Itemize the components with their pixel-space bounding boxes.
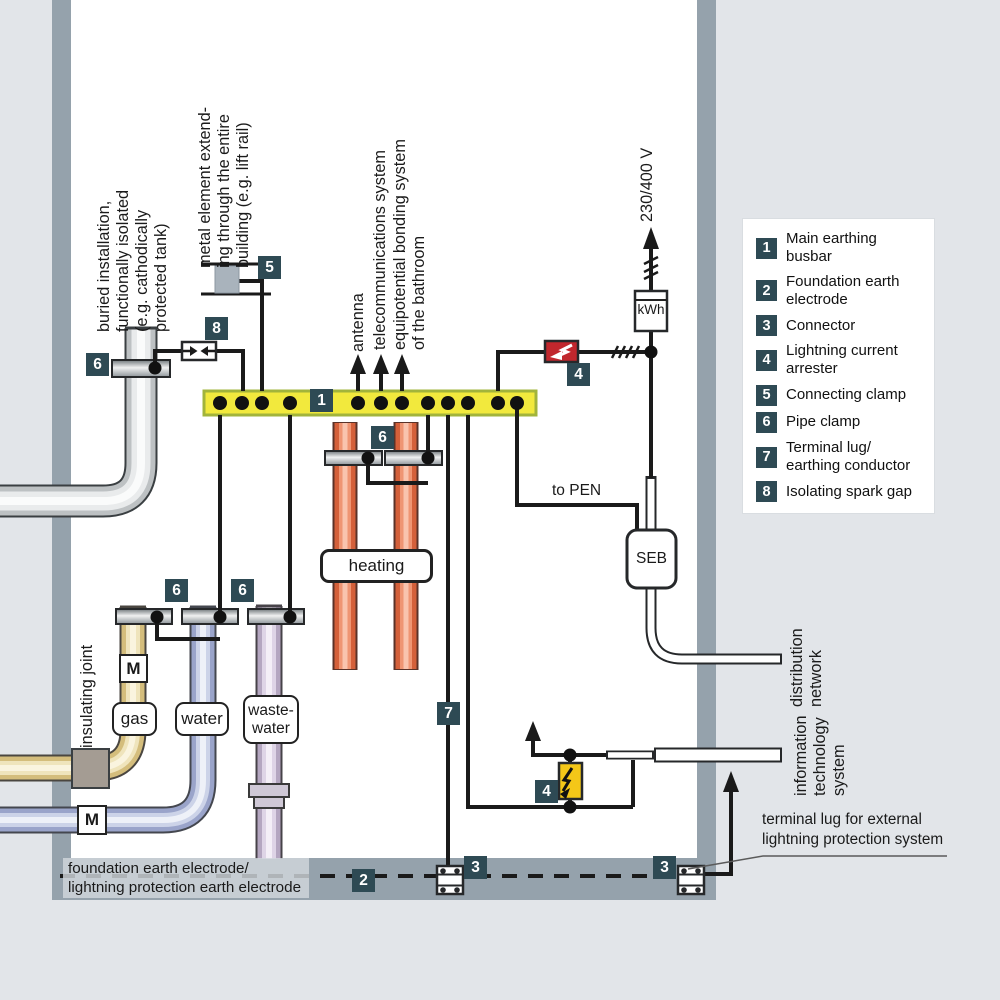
isolating-spark-gap [182,342,216,360]
label-metal-element: metal element extend- ing through the en… [196,107,253,268]
marker-6-clamp-gas-water: 6 [165,579,188,602]
label-buried-installation: buried installation, functionally isolat… [95,190,171,332]
legend-item-2: 2 Foundation earth electrode [756,273,926,310]
legend-label-8: Isolating spark gap [786,483,912,501]
legend-item-4: 4 Lightning current arrester [756,342,926,379]
legend: 1 Main earthing busbar 2 Foundation eart… [742,218,935,514]
label-telecommunications: telecommunications system [371,150,390,350]
marker-6-clamp-waste: 6 [231,579,254,602]
label-equipotential-bathroom: equipotential bonding system of the bath… [391,139,429,350]
water-box: water [175,702,229,736]
connector-right [678,866,704,894]
marker-1-main-busbar: 1 [310,389,333,412]
earthing-system-diagram: buried installation, functionally isolat… [0,0,1000,1000]
marker-6-clamp-buried: 6 [86,353,109,376]
legend-item-8: 8 Isolating spark gap [756,481,926,502]
water-meter-box: M [77,805,107,835]
label-antenna: antenna [349,293,368,352]
label-voltage: 230/400 V [638,148,657,222]
legend-badge-7: 7 [756,447,777,468]
legend-label-5: Connecting clamp [786,386,906,404]
legend-label-7: Terminal lug/ earthing conductor [786,439,910,476]
label-infotech-system: information technology system [792,715,849,796]
legend-badge-6: 6 [756,412,777,433]
legend-badge-8: 8 [756,481,777,502]
heating-box: heating [320,549,433,583]
marker-5-connecting-clamp: 5 [258,256,281,279]
main-earthing-busbar [204,391,536,415]
gas-meter-box: M [119,654,148,683]
legend-item-5: 5 Connecting clamp [756,385,926,406]
legend-badge-1: 1 [756,238,777,259]
label-terminal-lug-external: terminal lug for external lightning prot… [762,810,957,850]
label-distribution-network: distribution network [788,628,826,707]
legend-label-1: Main earthing busbar [786,230,926,267]
legend-badge-4: 4 [756,350,777,371]
legend-badge-3: 3 [756,315,777,336]
legend-label-6: Pipe clamp [786,413,860,431]
arrester-yellow [559,763,582,799]
legend-item-3: 3 Connector [756,315,926,336]
marker-2-foundation-electrode: 2 [352,869,375,892]
legend-label-3: Connector [786,317,855,335]
kwh-divider [635,299,667,301]
connector-left [437,866,463,894]
legend-label-4: Lightning current arrester [786,342,898,379]
marker-4-arrester-top: 4 [567,363,590,386]
legend-badge-5: 5 [756,385,777,406]
legend-badge-2: 2 [756,280,777,301]
waste-water-box: waste- water [243,695,299,744]
marker-3-connector-left: 3 [464,856,487,879]
legend-label-2: Foundation earth electrode [786,273,899,310]
marker-4-arrester-bottom: 4 [535,780,558,803]
label-insulating-joint: insulating joint [78,645,97,748]
marker-6-clamp-heating: 6 [371,426,394,449]
kwh-label: kWh [635,302,667,317]
kwh-meter: kWh [635,291,667,331]
marker-8-spark-gap: 8 [205,317,228,340]
label-to-pen: to PEN [552,482,601,500]
label-foundation-electrode: foundation earth electrode/ lightning pr… [63,858,309,898]
legend-item-6: 6 Pipe clamp [756,412,926,433]
insulating-joint [72,749,109,788]
legend-item-7: 7 Terminal lug/ earthing conductor [756,439,926,476]
arrester-red [545,341,578,362]
seb-label: SEB [627,530,676,588]
marker-7-terminal-lug: 7 [437,702,460,725]
legend-item-1: 1 Main earthing busbar [756,230,926,267]
marker-3-connector-right: 3 [653,856,676,879]
gas-box: gas [112,702,157,736]
